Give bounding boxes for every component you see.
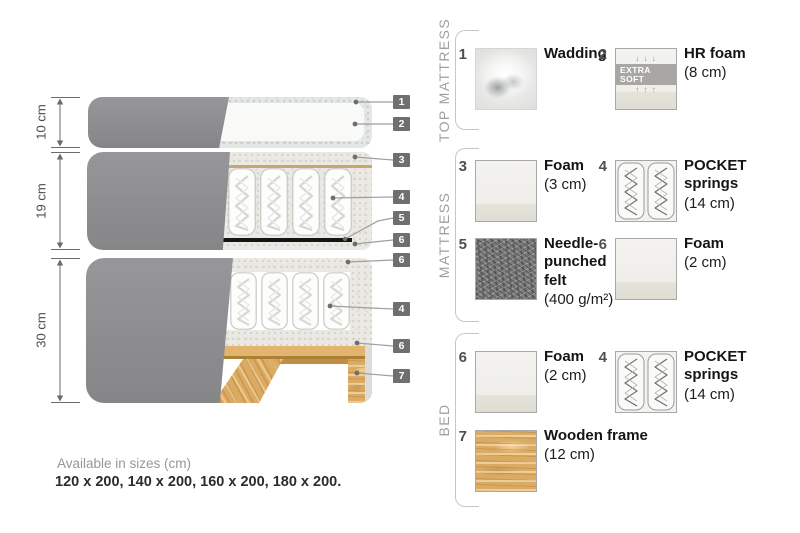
- bed-layers-infographic: 10 cm 19 cm 30 cm 1 2 3 4 5 6 6 4 6 7 TO…: [0, 0, 800, 533]
- legend-item-foam-bed: 6 Foam (2 cm): [451, 348, 587, 413]
- available-sizes-list: 120 x 200, 140 x 200, 160 x 200, 180 x 2…: [55, 474, 341, 490]
- legend-number: 4: [591, 157, 607, 175]
- foam-swatch: [475, 160, 537, 222]
- arrows-down-icon: ↓ ↓ ↓: [635, 55, 656, 63]
- pocket-springs-swatch: [615, 351, 677, 413]
- legend-detail: (14 cm): [684, 194, 747, 214]
- legend-item-felt: 5 Needle- punched felt (400 g/m²): [451, 235, 613, 309]
- legend-name-line2: springs: [684, 175, 747, 193]
- arrows-up-icon: ↑ ↑ ↑: [635, 86, 656, 94]
- callout-3: 3: [393, 153, 410, 167]
- callout-6c: 6: [393, 339, 410, 353]
- legend-number: 7: [451, 427, 467, 445]
- legend-detail: (2 cm): [684, 253, 727, 273]
- wood-swatch: [475, 430, 537, 492]
- wood-rail: [216, 346, 372, 359]
- legend-name: Foam: [684, 235, 727, 253]
- callout-1: 1: [393, 95, 410, 109]
- legend-number: 1: [451, 45, 467, 63]
- legend-detail: (3 cm): [544, 175, 587, 195]
- legend-item-wooden-frame: 7 Wooden frame (12 cm): [451, 427, 648, 492]
- legend-number: 5: [451, 235, 467, 253]
- legend-item-pocket-springs-bed: 4 POCKET springs (14 cm): [591, 348, 747, 413]
- legend-detail: (14 cm): [684, 385, 747, 405]
- felt-layer: [212, 238, 352, 242]
- callout-2: 2: [393, 117, 410, 131]
- fabric-cover: [88, 97, 229, 148]
- callout-5: 5: [393, 211, 410, 225]
- legend-name: POCKET: [684, 348, 747, 366]
- extra-soft-badge: EXTRA SOFT: [616, 64, 676, 85]
- section-mattress: [87, 152, 372, 250]
- pocket-springs-swatch: [615, 160, 677, 222]
- legend-number: 6: [451, 348, 467, 366]
- legend-name: Foam: [544, 157, 587, 175]
- side-strip: [365, 346, 372, 403]
- fabric-cover: [86, 258, 233, 403]
- legend-name-line2: springs: [684, 366, 747, 384]
- legend-section-mattress: MATTRESS: [436, 192, 452, 278]
- legend-item-wadding: 1 Wadding: [451, 45, 607, 110]
- legend-section-bed: BED: [436, 404, 452, 437]
- callout-7: 7: [393, 369, 410, 383]
- section-top-mattress: [88, 97, 372, 148]
- wadding-swatch: [475, 48, 537, 110]
- dimension-label-bed: 30 cm: [34, 312, 49, 347]
- legend-item-foam-mattress: 6 Foam (2 cm): [591, 235, 727, 300]
- dimension-label-top: 10 cm: [34, 104, 49, 139]
- hr-foam-swatch: ↓ ↓ ↓ EXTRA SOFT ↑ ↑ ↑: [615, 48, 677, 110]
- legend-detail: (12 cm): [544, 445, 648, 465]
- callout-6b: 6: [393, 253, 410, 267]
- legend-detail: (2 cm): [544, 366, 587, 386]
- legend-item-foam-3cm: 3 Foam (3 cm): [451, 157, 587, 222]
- foam-core: [212, 103, 364, 141]
- legend-number: 6: [591, 235, 607, 253]
- wood-leg-left: [213, 359, 283, 403]
- legend-number: 4: [591, 348, 607, 366]
- legend-item-hr-foam: 2 ↓ ↓ ↓ EXTRA SOFT ↑ ↑ ↑ HR foam (8 cm): [591, 45, 746, 110]
- legend-number: 2: [591, 45, 607, 63]
- legend-name: HR foam: [684, 45, 746, 63]
- callout-4b: 4: [393, 302, 410, 316]
- legend-number: 3: [451, 157, 467, 175]
- pocket-springs: [230, 272, 350, 330]
- fabric-cover: [87, 152, 230, 250]
- legend-name: Foam: [544, 348, 587, 366]
- pocket-springs: [228, 168, 352, 236]
- foam-swatch: [615, 238, 677, 300]
- foam-swatch: [475, 351, 537, 413]
- pocket-springs-icon: [616, 352, 676, 412]
- callout-6a: 6: [393, 233, 410, 247]
- felt-swatch: [475, 238, 537, 300]
- section-bed: [86, 258, 372, 403]
- dimension-label-mid: 19 cm: [34, 183, 49, 218]
- available-sizes-title: Available in sizes (cm): [57, 456, 191, 471]
- legend-detail: (8 cm): [684, 63, 746, 83]
- pocket-springs-icon: [616, 161, 676, 221]
- callout-4: 4: [393, 190, 410, 204]
- legend-section-top-mattress: TOP MATTRESS: [436, 18, 452, 142]
- legend-name: Wooden frame: [544, 427, 648, 445]
- legend-item-pocket-springs-mattress: 4 POCKET springs (14 cm): [591, 157, 747, 222]
- legend-name: POCKET: [684, 157, 747, 175]
